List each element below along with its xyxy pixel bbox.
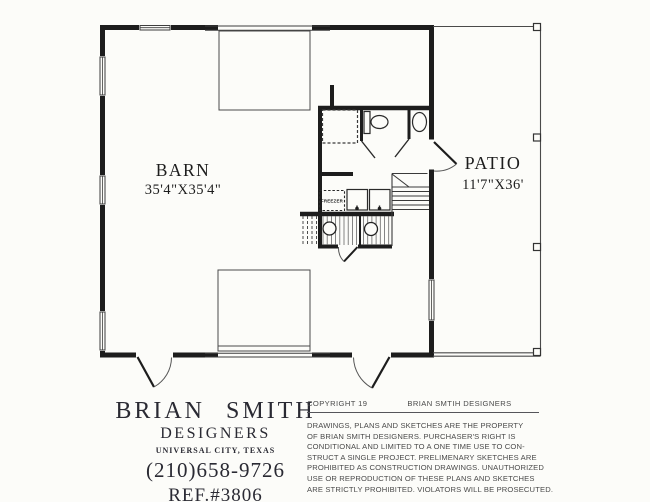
door-swing-bottom-left — [138, 357, 172, 387]
designer-phone: (210)658-9726 — [103, 458, 328, 483]
designer-location: UNIVERSAL CITY, TEXAS — [103, 446, 328, 455]
appliance-right — [370, 190, 391, 211]
door-swing-bottom-right — [354, 357, 390, 388]
copyright-block: COPYRIGHT 19 BRIAN SMTIH DESIGNERS DRAWI… — [307, 399, 539, 495]
patio-label: PATIO — [465, 153, 522, 173]
toilet — [364, 112, 388, 134]
copyright-holder: BRIAN SMTIH DESIGNERS — [407, 399, 511, 408]
floor-plan-sheet: FREEZER — [0, 0, 650, 502]
designer-block: BRIAN SMITH DESIGNERS UNIVERSAL CITY, TE… — [103, 398, 328, 502]
sliding-door-top — [205, 26, 330, 110]
notice-line: STRUCT A SINGLE PROJECT. PRELIMENARY SKE… — [307, 453, 539, 464]
copyright-line: COPYRIGHT 19 BRIAN SMTIH DESIGNERS — [307, 399, 539, 413]
notice-line: USE OR REPRODUCTION OF THESE PLANS AND S… — [307, 474, 539, 485]
bathroom-door-leaves — [362, 139, 410, 158]
shower-dashed-outline — [323, 110, 358, 143]
dashed-stall-lines — [303, 216, 317, 245]
designer-name: BRIAN SMITH — [103, 398, 328, 425]
notice-line: DRAWINGS, PLANS AND SKETCHES ARE THE PRO… — [307, 421, 539, 432]
appliance-left — [347, 190, 368, 211]
sink — [413, 113, 427, 132]
designer-reference: REF.#3806 — [103, 485, 328, 502]
barn-label: BARN — [156, 160, 211, 180]
patio-dimensions-label: 11'7"X36' — [462, 177, 524, 193]
floor-plan-drawing: FREEZER — [0, 0, 650, 400]
notice-line: CONDITIONAL AND LIMITED TO A ONE TIME US… — [307, 442, 539, 453]
patio-posts — [534, 24, 541, 356]
barn-dimensions-label: 35'4"X35'4" — [145, 182, 222, 198]
door-swing-patio — [434, 142, 457, 171]
freezer-label: FREEZER — [321, 199, 344, 204]
designer-role: DESIGNERS — [103, 425, 328, 443]
notice-line: ARE STRICTLY PROHIBITED. VIOLATORS WILL … — [307, 485, 539, 496]
notice-line: PROHIBITED AS CONSTRUCTION DRAWINGS. UNA… — [307, 463, 539, 474]
door-swing-stall — [338, 247, 357, 262]
copyright-label: COPYRIGHT 19 — [307, 399, 367, 408]
sliding-door-bottom — [205, 270, 330, 357]
stairs — [392, 174, 429, 247]
notice-line: OF BRIAN SMITH DESIGNERS. PURCHASER'S RI… — [307, 432, 539, 443]
drain-left — [323, 222, 336, 235]
drain-right — [365, 223, 378, 236]
interior-walls — [300, 85, 431, 248]
copyright-notice: DRAWINGS, PLANS AND SKETCHES ARE THE PRO… — [307, 421, 539, 495]
